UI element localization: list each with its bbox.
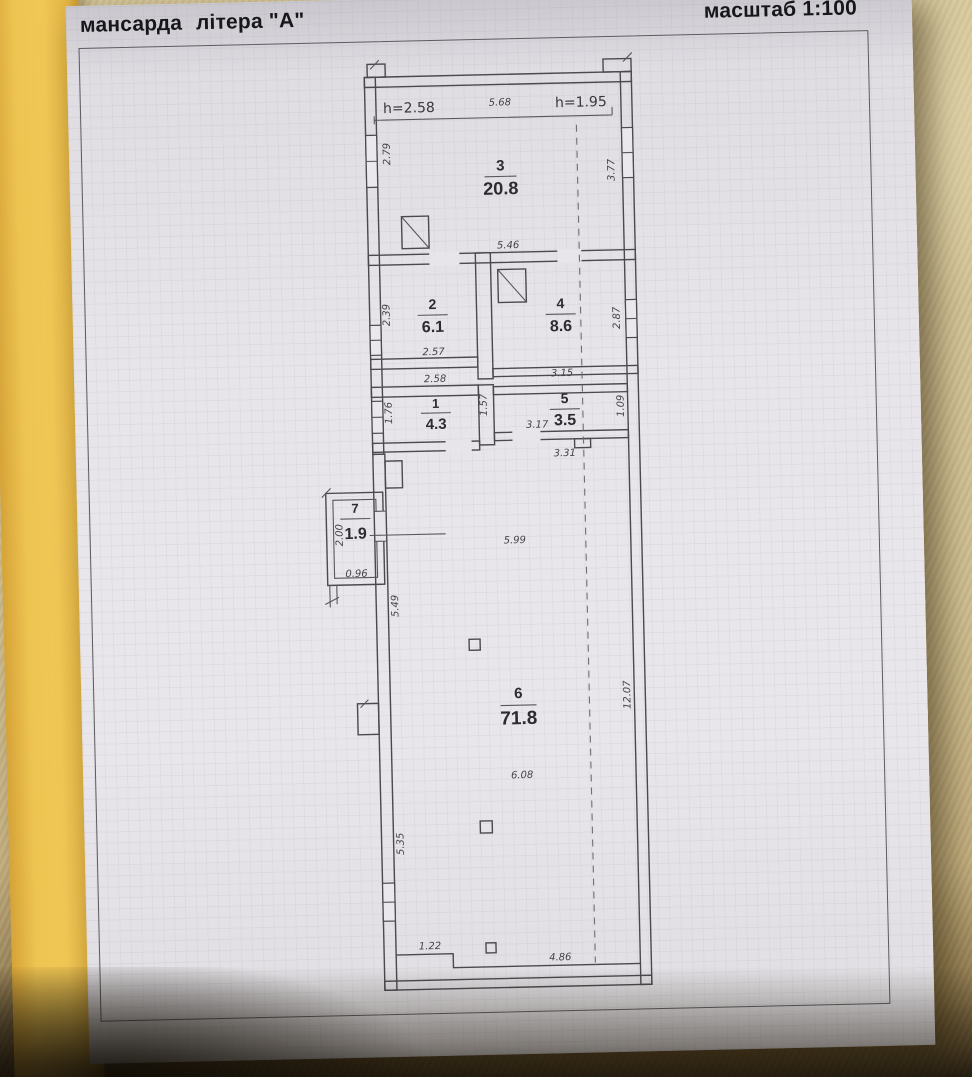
room-3-label: 3 20.8 — [483, 157, 519, 199]
height-right-label: h=1.95 — [555, 94, 607, 111]
room-5-label: 5 3.5 — [549, 390, 580, 430]
dim-room5-right: 1.09 — [616, 395, 628, 418]
room-4-label: 4 8.6 — [545, 295, 576, 336]
floor-plan-svg: h=2.58 h=1.95 3 20.8 2 6.1 4 8.6 1 — [66, 0, 936, 1064]
room-5-number: 5 — [561, 390, 569, 406]
column-markers — [469, 639, 496, 953]
dim-room7-left: 2.00 — [334, 524, 346, 547]
dim-room6-right-height: 12.07 — [622, 680, 634, 710]
room-4-number: 4 — [556, 295, 564, 311]
room-2-number: 2 — [428, 296, 436, 312]
dim-room6-upper-width: 5.99 — [504, 535, 527, 547]
room-7-area: 1.9 — [344, 526, 367, 544]
room-6-area: 71.8 — [500, 708, 537, 730]
dim-room3-top: 5.68 — [489, 97, 512, 109]
room-5-area: 3.5 — [554, 412, 577, 430]
room-6-label: 6 71.8 — [500, 685, 538, 730]
dim-room5-bottom-left: 3.17 — [526, 419, 549, 431]
room-2-label: 2 6.1 — [417, 296, 448, 337]
dim-room2-left: 2.39 — [381, 304, 393, 327]
photo-scene: мансарда літера "А" масштаб 1:100 — [0, 0, 972, 1077]
height-left-label: h=2.58 — [383, 100, 435, 117]
dim-room3-right: 3.77 — [606, 158, 618, 181]
dimension-labels: 5.68 2.79 3.77 5.46 2.39 2.57 2.87 3.15 … — [325, 95, 640, 968]
dim-room6-left-upper: 5.49 — [390, 595, 402, 618]
vent-shafts — [401, 214, 526, 305]
dim-room6-bottom-width: 4.86 — [549, 952, 572, 964]
dim-room4-bottom: 3.15 — [551, 368, 574, 380]
dim-room6-bottom-left: 1.22 — [419, 941, 442, 953]
room-3-area: 20.8 — [483, 178, 518, 199]
room-1-area: 4.3 — [426, 416, 447, 433]
room-1-label: 1 4.3 — [421, 396, 452, 434]
dim-rooms1-5-divider: 1.57 — [478, 393, 490, 416]
dim-room2-bottom: 2.57 — [422, 347, 445, 359]
room-2-area: 6.1 — [422, 319, 445, 337]
dim-room6-left-lower: 5.35 — [395, 833, 407, 856]
room-1-number: 1 — [432, 396, 440, 411]
plan-page: мансарда літера "А" масштаб 1:100 — [66, 0, 936, 1064]
room-4-area: 8.6 — [550, 318, 573, 336]
dim-room3-left: 2.79 — [382, 143, 394, 166]
dim-room1-left: 1.76 — [384, 402, 396, 425]
dim-room1-top: 2.58 — [424, 374, 447, 386]
dim-room7-bottom: 0.96 — [345, 569, 368, 581]
dim-room5-below: 3.31 — [554, 448, 577, 460]
dim-room3-bottom: 5.46 — [497, 240, 520, 252]
room-7-number: 7 — [351, 501, 359, 516]
dim-room4-right: 2.87 — [612, 306, 624, 329]
room-3-number: 3 — [496, 157, 505, 174]
dim-room6-mid-width: 6.08 — [511, 770, 534, 782]
room-6-number: 6 — [514, 685, 523, 702]
